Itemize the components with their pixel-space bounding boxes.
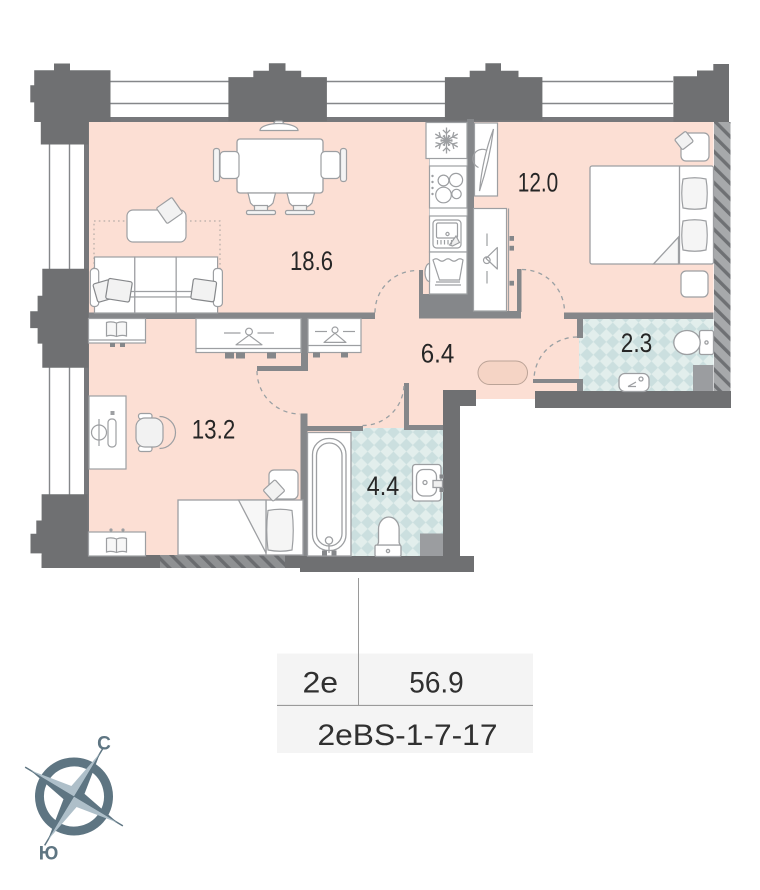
svg-text:13.2: 13.2	[192, 415, 236, 445]
svg-text:2.3: 2.3	[621, 328, 653, 358]
svg-text:2eBS-1-7-17: 2eBS-1-7-17	[318, 719, 498, 752]
svg-text:56.9: 56.9	[409, 667, 464, 700]
svg-text:С: С	[97, 734, 111, 755]
svg-text:2e: 2e	[303, 667, 339, 700]
svg-text:12.0: 12.0	[518, 168, 559, 198]
svg-text:18.6: 18.6	[290, 246, 333, 276]
svg-text:4.4: 4.4	[367, 471, 400, 501]
svg-text:6.4: 6.4	[421, 339, 455, 369]
svg-text:Ю: Ю	[39, 844, 59, 865]
